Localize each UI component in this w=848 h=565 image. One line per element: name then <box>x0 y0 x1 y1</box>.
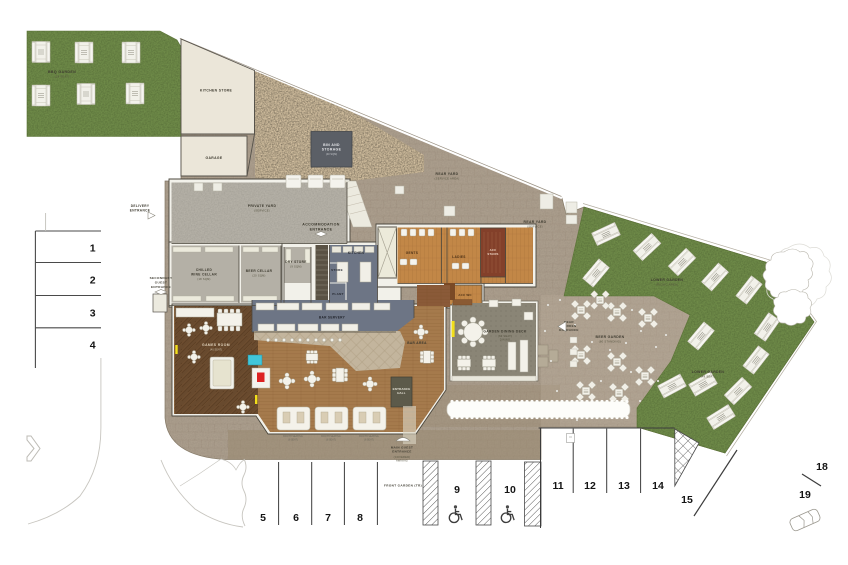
svg-text:PRIVATE YARD: PRIVATE YARD <box>248 204 277 208</box>
svg-text:LOWER GARDEN: LOWER GARDEN <box>651 278 684 282</box>
svg-text:GENTS: GENTS <box>406 251 418 255</box>
svg-text:(SERVICE): (SERVICE) <box>254 209 270 213</box>
svg-text:HALL: HALL <box>397 391 406 395</box>
svg-text:WINE CELLAR: WINE CELLAR <box>191 273 217 277</box>
svg-text:(PICNIC AREA): (PICNIC AREA) <box>656 283 678 287</box>
svg-text:REAR YARD: REAR YARD <box>436 172 459 176</box>
svg-text:ACCOMMODATION: ACCOMMODATION <box>302 223 339 227</box>
svg-text:KITCHEN STORE: KITCHEN STORE <box>200 89 233 93</box>
svg-text:(8 SEAT): (8 SEAT) <box>326 439 336 442</box>
svg-text:ENTRANCE: ENTRANCE <box>392 450 411 454</box>
svg-text:7: 7 <box>325 512 331 524</box>
svg-text:13: 13 <box>618 480 630 492</box>
svg-text:ENTRANCE: ENTRANCE <box>151 285 171 289</box>
svg-text:8: 8 <box>357 512 363 524</box>
svg-text:4: 4 <box>90 340 96 352</box>
svg-text:15: 15 <box>681 494 693 506</box>
svg-text:(COVERED): (COVERED) <box>394 455 411 459</box>
svg-text:DINING: DINING <box>500 338 511 342</box>
svg-text:ENTRANCE: ENTRANCE <box>310 228 333 232</box>
svg-text:3: 3 <box>90 308 96 320</box>
svg-text:(48 SEAT): (48 SEAT) <box>701 375 716 379</box>
svg-text:STORE: STORE <box>331 268 343 272</box>
svg-text:18: 18 <box>816 461 828 473</box>
svg-text:ACC WC: ACC WC <box>458 293 472 297</box>
svg-text:(SERVICE AREA): (SERVICE AREA) <box>435 177 460 181</box>
svg-text:12: 12 <box>584 480 596 492</box>
svg-text:GARDEN DINING DECK: GARDEN DINING DECK <box>483 330 527 334</box>
svg-text:BBQ GARDEN: BBQ GARDEN <box>48 70 76 74</box>
svg-text:DRY STORE: DRY STORE <box>285 260 307 264</box>
svg-text:GUEST: GUEST <box>155 281 167 285</box>
svg-text:(8 SEAT): (8 SEAT) <box>288 439 298 442</box>
svg-text:BIN AND: BIN AND <box>323 143 340 147</box>
svg-text:9: 9 <box>454 484 460 496</box>
svg-text:10: 10 <box>504 484 516 496</box>
svg-text:STAIRS: STAIRS <box>487 252 498 256</box>
svg-text:(SERVICE): (SERVICE) <box>527 225 543 229</box>
svg-text:6: 6 <box>293 512 299 524</box>
svg-text:KITCHEN: KITCHEN <box>348 251 365 255</box>
svg-text:SECONDARY: SECONDARY <box>150 276 173 280</box>
svg-text:BEER CELLAR: BEER CELLAR <box>246 269 273 273</box>
svg-text:5: 5 <box>260 512 266 524</box>
svg-text:ENTRANCE: ENTRANCE <box>130 209 151 213</box>
svg-text:(18 SQM): (18 SQM) <box>197 277 210 281</box>
svg-text:CHILLED: CHILLED <box>196 268 213 272</box>
svg-text:(8 SEAT): (8 SEAT) <box>364 439 374 442</box>
svg-text:GAMES ROOM: GAMES ROOM <box>202 343 230 347</box>
svg-text:BAR SERVERY: BAR SERVERY <box>319 316 346 320</box>
svg-text:PLANT: PLANT <box>332 292 344 296</box>
svg-text:14: 14 <box>652 480 664 492</box>
svg-text:LOWER GARDEN: LOWER GARDEN <box>692 370 725 374</box>
svg-text:(40 SQM): (40 SQM) <box>326 152 337 156</box>
svg-text:STORAGE: STORAGE <box>322 148 342 152</box>
svg-text:(24 SEAT): (24 SEAT) <box>55 75 70 79</box>
svg-text:GARAGE: GARAGE <box>206 156 223 160</box>
svg-text:(20 SQM): (20 SQM) <box>252 274 265 278</box>
svg-text:DELIVERY: DELIVERY <box>131 204 150 208</box>
svg-text:2: 2 <box>90 275 96 287</box>
svg-text:11: 11 <box>552 480 563 492</box>
svg-text:FRONT GARDEN (TR): FRONT GARDEN (TR) <box>384 484 422 488</box>
svg-text:AWNING: AWNING <box>396 459 408 463</box>
svg-text:1: 1 <box>90 243 96 255</box>
svg-text:LADIES: LADIES <box>452 255 466 259</box>
svg-text:(40 SEAT): (40 SEAT) <box>210 348 222 352</box>
svg-text:BEER GARDEN: BEER GARDEN <box>596 335 625 339</box>
svg-text:REAR YARD: REAR YARD <box>524 220 547 224</box>
svg-text:19: 19 <box>799 489 811 501</box>
svg-text:(80 STANDING): (80 STANDING) <box>599 340 621 344</box>
svg-text:(60 SEAT): (60 SEAT) <box>498 334 512 338</box>
svg-text:BAR AREA: BAR AREA <box>407 341 427 345</box>
svg-text:(9 SQM): (9 SQM) <box>290 265 302 269</box>
